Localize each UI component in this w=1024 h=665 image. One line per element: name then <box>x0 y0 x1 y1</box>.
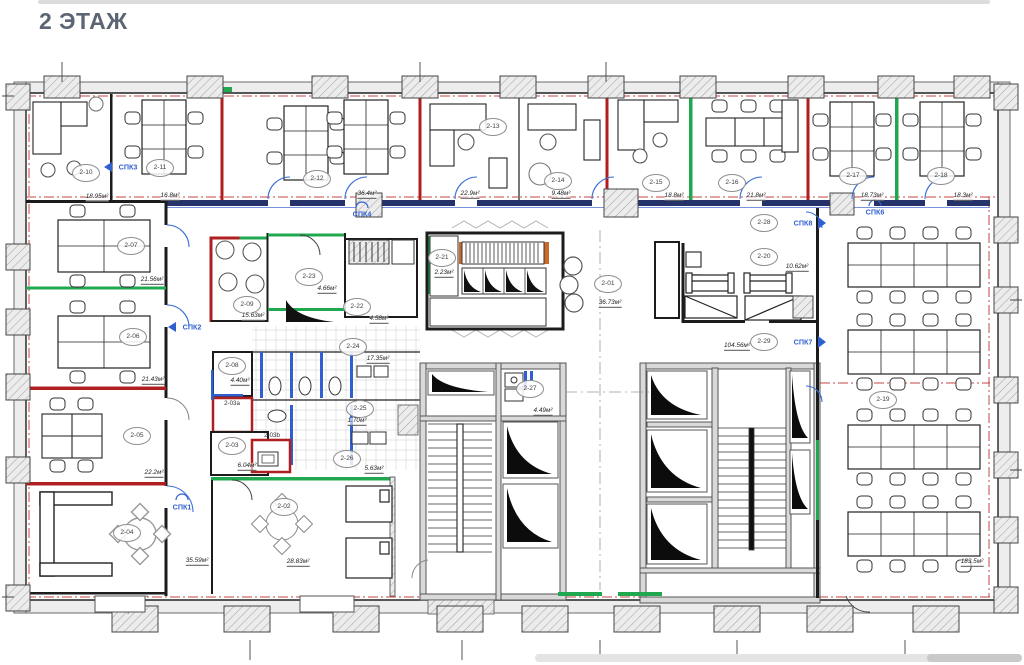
room-2-02 <box>211 477 395 596</box>
spk1-label: СПК1 <box>173 503 192 510</box>
room-label-2-03b: 2-03b <box>264 433 280 439</box>
spk2-label: СПК2 <box>183 323 202 330</box>
room-bubble-2-04: 2-04 <box>113 524 141 542</box>
room-bubble-2-08: 2-08 <box>218 357 246 375</box>
open-office-2-19 <box>816 208 980 598</box>
stair-core-2 <box>640 363 820 603</box>
room-bubble-2-05: 2-05 <box>123 427 151 445</box>
area-2-13: 22.9м² <box>461 191 480 199</box>
area-2-24: 17.35м² <box>367 356 390 364</box>
area-2-11: 16.8м² <box>161 193 180 201</box>
closet-2-21 <box>427 221 563 337</box>
area-2-25: 1.70м² <box>348 418 367 426</box>
room-bubble-2-21: 2-21 <box>428 249 456 267</box>
area-2-12: 36.4м² <box>358 191 377 199</box>
staircase-1 <box>428 424 492 552</box>
horizontal-scrollbar[interactable] <box>535 654 1022 662</box>
room-bubble-2-12: 2-12 <box>303 170 331 188</box>
spk3-label: СПК3 <box>119 163 138 170</box>
area-2-21: 2.23м² <box>435 270 454 278</box>
floor-plan-drawing: 2-10 2-11 2-12 2-13 2-14 2-15 2-16 2-17 … <box>0 0 1024 665</box>
area-2-01: 36.73м² <box>599 300 622 308</box>
room-bubble-2-19: 2-19 <box>869 391 897 409</box>
room-bubble-2-24: 2-24 <box>339 338 367 356</box>
area-2-02: 28.83м² <box>287 559 310 567</box>
area-2-06: 21.43м² <box>142 377 165 385</box>
area-2-19: 183.5м² <box>961 559 984 567</box>
room-bubble-2-23: 2-23 <box>295 268 323 286</box>
area-2-07: 21.56м² <box>141 277 164 285</box>
stair-core-1 <box>420 363 566 614</box>
area-2-15: 18.8м² <box>665 193 684 201</box>
spk6-label: СПК6 <box>866 208 885 215</box>
room-bubble-2-07: 2-07 <box>117 237 145 255</box>
area-2-09: 15.63м² <box>242 313 265 321</box>
room-bubble-2-28: 2-28 <box>750 214 778 232</box>
area-2-17: 18.73м² <box>861 193 884 201</box>
room-bubble-2-27: 2-27 <box>516 380 544 398</box>
room-bubble-2-03: 2-03 <box>218 437 246 455</box>
room-label-2-03a: 2-03a <box>224 401 240 407</box>
floor-plan-page: 2 ЭТАЖ <box>0 0 1024 665</box>
staircase-2 <box>718 428 786 550</box>
area-2-26: 5.63м² <box>365 466 384 474</box>
area-2-08: 4.40м² <box>231 378 250 386</box>
area-2-23: 4.66м² <box>318 286 337 294</box>
room-bubble-2-29: 2-29 <box>750 333 778 351</box>
room-bubble-2-16: 2-16 <box>718 174 746 192</box>
room-bubble-2-17: 2-17 <box>839 167 867 185</box>
room-bubble-2-20: 2-20 <box>750 248 778 266</box>
reception-2-01 <box>560 242 701 318</box>
room-bubble-2-02: 2-02 <box>270 498 298 516</box>
room-2-04 <box>40 492 170 576</box>
area-2-05: 22.2м² <box>145 470 164 478</box>
floor-plan-canvas <box>0 0 1024 665</box>
room-bubble-2-18: 2-18 <box>927 167 955 185</box>
area-2-10: 18.95м² <box>86 194 109 202</box>
room-bubble-2-22: 2-22 <box>343 298 371 316</box>
area-2-22: 4.58м² <box>370 316 389 324</box>
room-bubble-2-14: 2-14 <box>544 172 572 190</box>
area-2-16: 21.8м² <box>747 193 766 201</box>
area-2-27: 4.49м² <box>534 408 553 416</box>
room-bubble-2-13: 2-13 <box>479 118 507 136</box>
spk8-label: СПК8 <box>794 219 813 226</box>
room-bubble-2-26: 2-26 <box>333 450 361 468</box>
scrollbar-thumb[interactable] <box>927 654 1022 662</box>
area-2-03: 6.04м² <box>238 463 257 471</box>
area-2-20: 10.62м² <box>786 264 809 272</box>
room-bubble-2-15: 2-15 <box>642 174 670 192</box>
area-2-04: 35.59м² <box>186 558 209 566</box>
area-2-18: 18.3м² <box>954 193 973 201</box>
area-2-14: 9.48м² <box>552 191 571 199</box>
room-bubble-2-10: 2-10 <box>72 164 100 182</box>
room-bubble-2-11: 2-11 <box>146 159 174 177</box>
room-bubble-2-01: 2-01 <box>594 275 622 293</box>
room-bubble-2-25: 2-25 <box>346 400 374 418</box>
area-2-29: 104.56м² <box>724 343 750 351</box>
spk7-label: СПК7 <box>794 338 813 345</box>
spk4-label: СПК4 <box>353 210 372 217</box>
room-bubble-2-06: 2-06 <box>119 328 147 346</box>
